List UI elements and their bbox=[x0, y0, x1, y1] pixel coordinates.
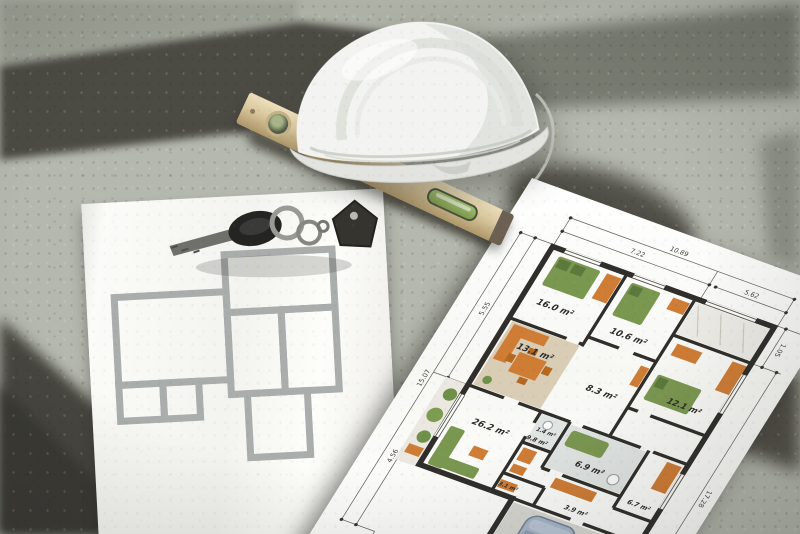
area-label-living: 26.2 m² bbox=[470, 417, 511, 439]
area-label-storage: 6.7 m² bbox=[625, 498, 652, 513]
dimension-label: 17.28 bbox=[696, 490, 714, 509]
area-label-hall: 8.3 m² bbox=[583, 384, 618, 403]
keys bbox=[160, 188, 382, 287]
hard-hat bbox=[273, 7, 560, 201]
construction-scene: 16.0 m² 10.6 m² 12.1 m² 13.1 m² 8.3 m² 6… bbox=[0, 0, 800, 534]
dimension-label: 5.62 bbox=[743, 289, 761, 301]
level-screw bbox=[249, 108, 256, 115]
dimension-label: 10.89 bbox=[668, 245, 690, 258]
dimension-label: 7.22 bbox=[629, 247, 647, 259]
key-shaft bbox=[169, 229, 234, 256]
dimension-label: 1.05 bbox=[772, 343, 787, 358]
dimension-label: 5.55 bbox=[477, 301, 492, 316]
area-label-bedroom-1: 16.0 m² bbox=[534, 298, 575, 320]
house-keychain bbox=[333, 200, 378, 247]
